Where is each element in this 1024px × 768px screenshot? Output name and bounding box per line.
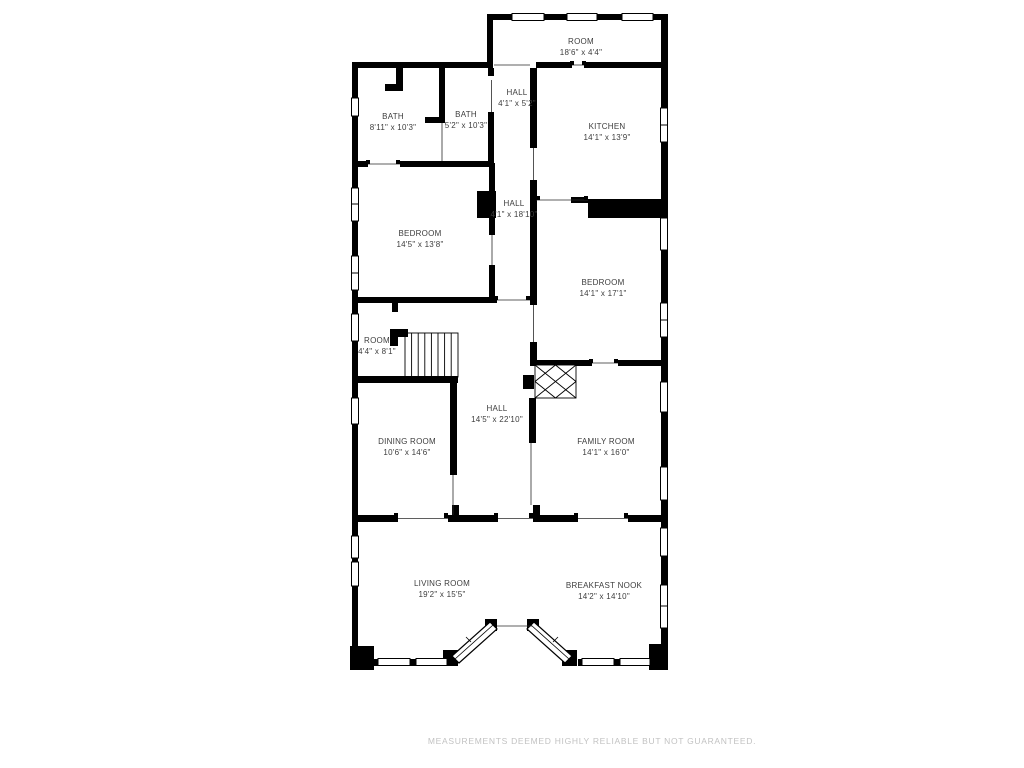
- room-label-room-top: ROOM 18'6" x 4'4": [560, 36, 602, 58]
- room-label-breakfast-nook: BREAKFAST NOOK 14'2" x 14'10": [566, 580, 642, 602]
- room-dims: 8'11" x 10'3": [370, 122, 417, 133]
- room-label-kitchen: KITCHEN 14'1" x 13'9": [583, 121, 630, 143]
- room-label-bath-large: BATH 8'11" x 10'3": [370, 111, 417, 133]
- room-dims: 14'2" x 14'10": [566, 591, 642, 602]
- room-dims: 18'6" x 4'4": [560, 47, 602, 58]
- room-label-hall-upper: HALL 4'1" x 5'2": [498, 87, 536, 109]
- room-label-bath-small: BATH 5'2" x 10'3": [445, 109, 487, 131]
- room-name: FAMILY ROOM: [577, 436, 635, 447]
- room-dims: 4'1" x 18'10": [490, 209, 537, 220]
- room-label-bedroom-right: BEDROOM 14'1" x 17'1": [579, 277, 626, 299]
- room-label-family-room: FAMILY ROOM 14'1" x 16'0": [577, 436, 635, 458]
- staircase: [405, 333, 458, 377]
- room-label-hall-main: HALL 14'5" x 22'10": [471, 403, 523, 425]
- room-label-living-room: LIVING ROOM 19'2" x 15'5": [414, 578, 470, 600]
- room-dims: 4'4" x 8'1": [358, 346, 396, 357]
- room-label-hall-mid: HALL 4'1" x 18'10": [490, 198, 537, 220]
- room-name: BREAKFAST NOOK: [566, 580, 642, 591]
- room-dims: 5'2" x 10'3": [445, 120, 487, 131]
- disclaimer-text: MEASUREMENTS DEEMED HIGHLY RELIABLE BUT …: [428, 736, 756, 746]
- room-dims: 19'2" x 15'5": [414, 589, 470, 600]
- room-dims: 14'5" x 13'8": [396, 239, 443, 250]
- room-dims: 14'5" x 22'10": [471, 414, 523, 425]
- fireplace: [535, 365, 576, 398]
- room-name: KITCHEN: [583, 121, 630, 132]
- room-label-dining-room: DINING ROOM 10'6" x 14'6": [378, 436, 436, 458]
- room-dims: 14'1" x 16'0": [577, 447, 635, 458]
- room-name: HALL: [471, 403, 523, 414]
- room-name: ROOM: [358, 335, 396, 346]
- room-name: ROOM: [560, 36, 602, 47]
- room-name: LIVING ROOM: [414, 578, 470, 589]
- room-label-bedroom-left: BEDROOM 14'5" x 13'8": [396, 228, 443, 250]
- floorplan-drawing: [0, 0, 1024, 768]
- room-name: BEDROOM: [396, 228, 443, 239]
- room-name: BEDROOM: [579, 277, 626, 288]
- room-name: HALL: [490, 198, 537, 209]
- door-openings: [368, 65, 628, 626]
- room-dims: 10'6" x 14'6": [378, 447, 436, 458]
- room-name: BATH: [370, 111, 417, 122]
- room-name: HALL: [498, 87, 536, 98]
- room-name: BATH: [445, 109, 487, 120]
- room-dims: 4'1" x 5'2": [498, 98, 536, 109]
- room-label-room-small: ROOM 4'4" x 8'1": [358, 335, 396, 357]
- room-dims: 14'1" x 17'1": [579, 288, 626, 299]
- room-name: DINING ROOM: [378, 436, 436, 447]
- floorplan-page: ROOM 18'6" x 4'4" HALL 4'1" x 5'2" BATH …: [0, 0, 1024, 768]
- bay-window-walls: [452, 622, 572, 663]
- room-dims: 14'1" x 13'9": [583, 132, 630, 143]
